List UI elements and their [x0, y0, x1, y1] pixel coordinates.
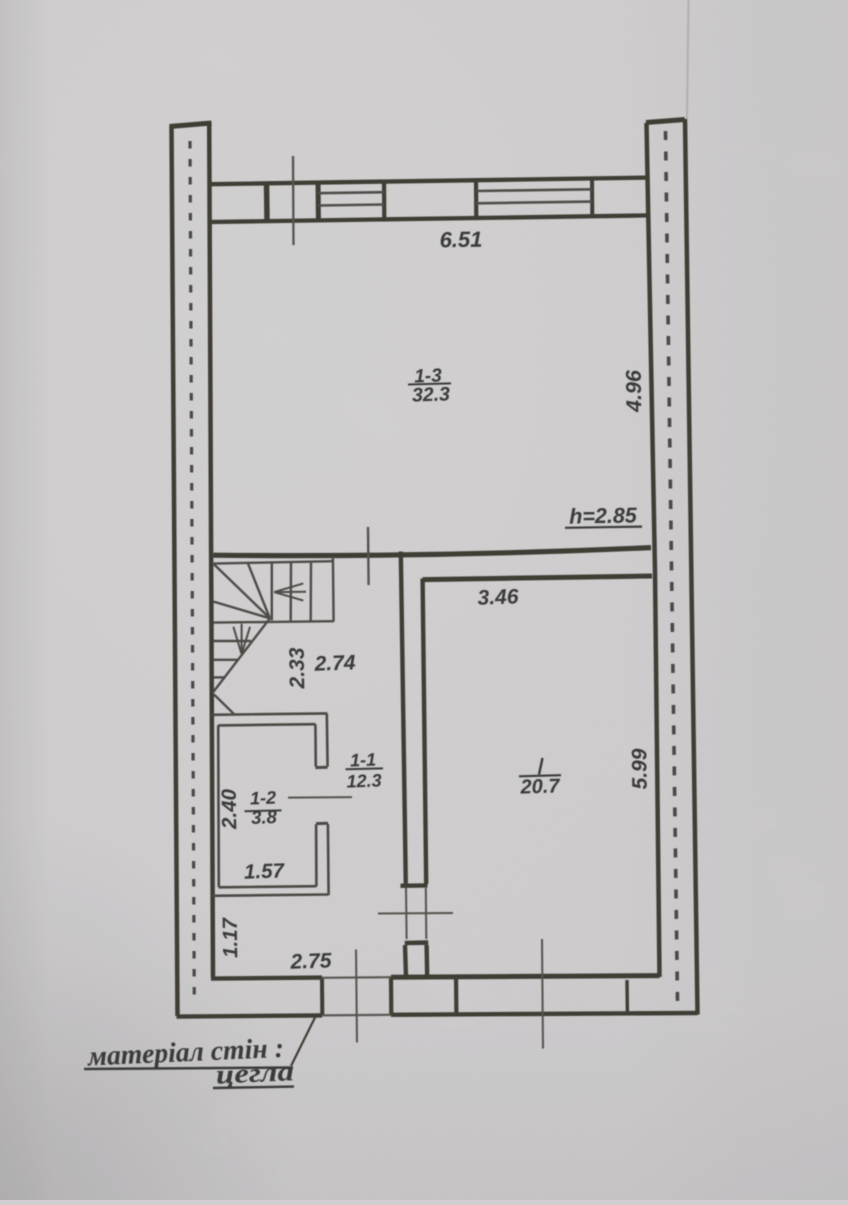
- svg-text:1.57: 1.57: [244, 859, 286, 883]
- svg-text:2.40: 2.40: [218, 788, 242, 830]
- svg-text:5.99: 5.99: [628, 748, 652, 790]
- svg-text:2.75: 2.75: [289, 949, 332, 973]
- svg-text:20.7: 20.7: [519, 775, 561, 798]
- svg-text:3.46: 3.46: [477, 585, 519, 609]
- svg-text:1-1: 1-1: [350, 750, 377, 771]
- svg-text:4.96: 4.96: [622, 369, 647, 413]
- svg-text:12.3: 12.3: [346, 770, 382, 791]
- svg-text:2.74: 2.74: [313, 651, 356, 675]
- svg-text:32.3: 32.3: [412, 383, 451, 406]
- svg-text:1.17: 1.17: [219, 916, 243, 958]
- svg-text:цегла: цегла: [215, 1056, 294, 1089]
- svg-text:6.51: 6.51: [439, 227, 482, 253]
- svg-text:h=2.85: h=2.85: [569, 503, 638, 528]
- svg-text:2.33: 2.33: [286, 647, 310, 690]
- svg-text:3.8: 3.8: [251, 806, 278, 828]
